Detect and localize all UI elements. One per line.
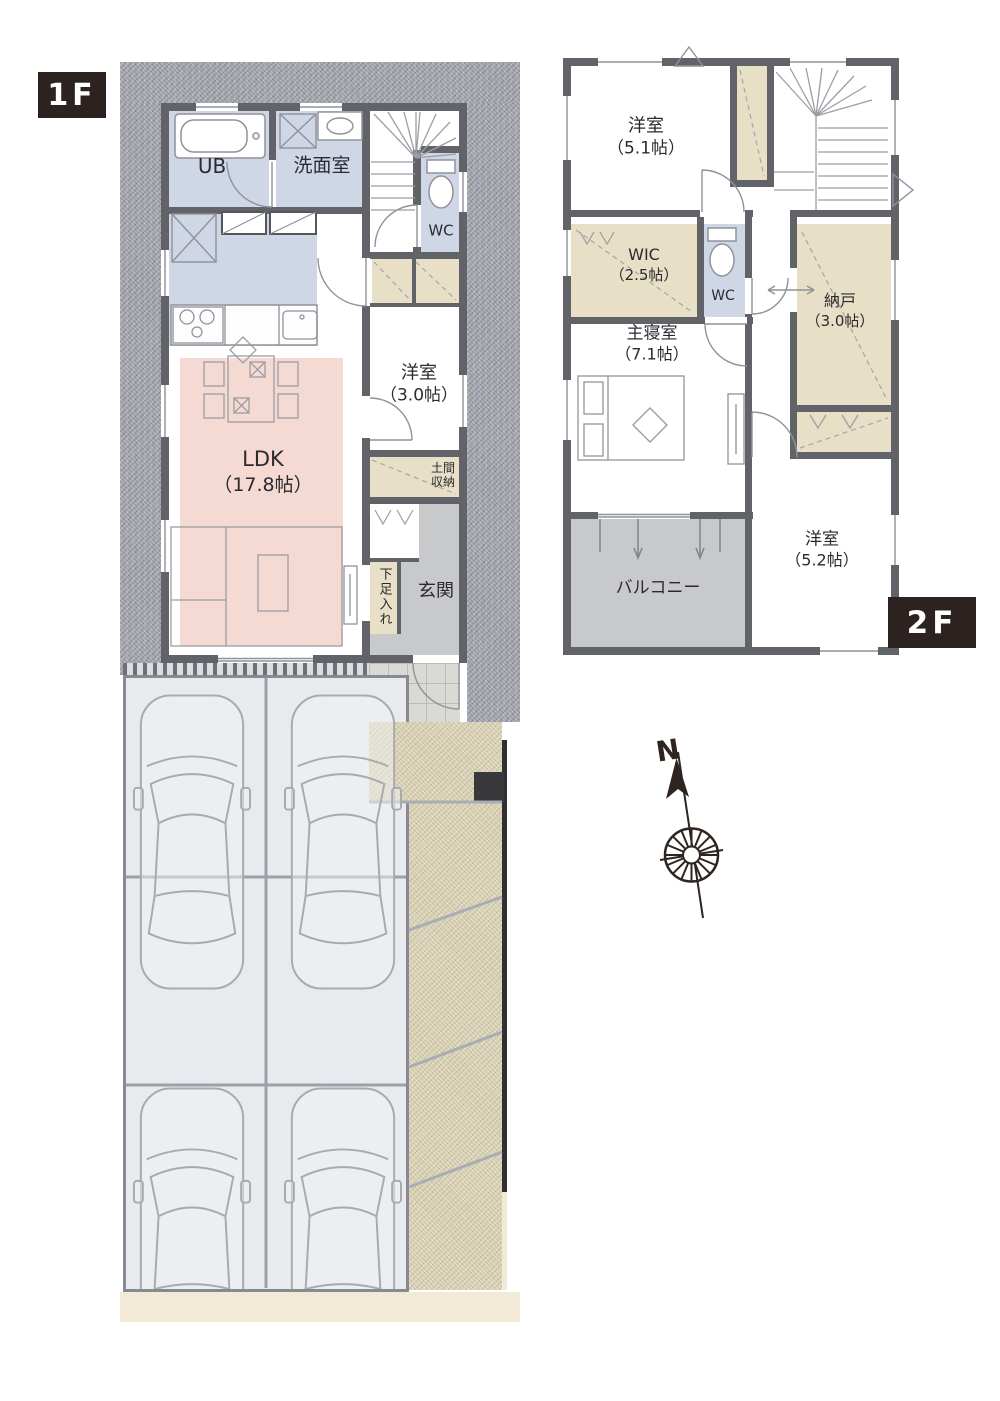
closet-genkan [369,504,419,558]
room-label-balcony: バルコニー [616,577,701,599]
wall [370,303,459,307]
room-label-ub: UB [198,153,226,179]
room-ldk [180,358,343,646]
gravel-path-side [409,802,502,1290]
room-label-wic: WIC （2.5帖） [610,245,679,285]
wall [563,210,899,217]
wall [362,497,459,504]
wall [790,217,797,452]
wall [169,207,368,214]
room-label-yoshitsu-1f: 洋室 （3.0帖） [380,361,458,406]
compass-north-label: N [654,732,682,768]
floor-tag-1f: 1F [38,72,106,118]
wall [745,217,752,317]
wall [362,103,370,207]
room-label-yoshitsu51: 洋室 （5.1帖） [607,114,685,159]
site-gravel-left [120,103,161,675]
wall [767,66,774,180]
parking-area [123,675,409,1292]
compass-north-arrow [666,758,689,799]
wall [730,180,774,187]
wall [790,405,899,412]
site-gravel-right [467,103,520,722]
wall [421,146,459,153]
room-label-bedroom: 主寝室 （7.1帖） [615,323,688,366]
wall [697,217,704,317]
room-label-wc-1f: WC [428,221,453,241]
room-label-gesokuire: 下足入れ [375,567,392,627]
room-label-doma-shuno: 土間 収納 [431,462,455,490]
wall [563,58,899,66]
wall [161,103,467,111]
wall [730,66,737,180]
wall [161,103,169,663]
site-gravel-top [120,62,520,103]
wall [563,512,753,519]
boundary-line [502,740,507,1192]
room-label-wc-2f: WC [711,287,735,305]
compass: N [654,732,723,918]
wall [369,558,419,562]
wall [362,207,370,655]
closet-yoshitsu52 [797,412,891,452]
boundary-line-end [502,1192,507,1290]
room-label-senmenshitsu: 洗面室 [293,154,350,179]
room-label-genkan: 玄関 [418,579,454,602]
wall [413,150,421,252]
wall [891,58,899,655]
closet-yoshitsu51 [737,66,767,180]
wall [412,259,416,303]
room-label-nando: 納戸 （3.0帖） [806,291,875,331]
wall [563,647,899,655]
floorplan-canvas: 1F 2F [0,0,1000,1401]
gutter-edge [123,663,369,675]
wall [269,111,276,207]
wall [161,655,467,663]
floor-tag-2f: 2F [888,597,976,648]
compass-needle [678,752,703,918]
site-front-strip [120,1292,520,1322]
wall [790,452,899,459]
wall [362,450,459,457]
wall [362,252,459,259]
wall [563,58,571,655]
room-label-yoshitsu52: 洋室 （5.2帖） [785,529,858,572]
utility-meter-box [474,772,504,802]
wall [745,317,752,655]
wall [397,562,401,634]
wall [459,103,467,663]
room-kitchen [169,214,317,346]
room-label-ldk: LDK （17.8帖） [213,446,312,498]
